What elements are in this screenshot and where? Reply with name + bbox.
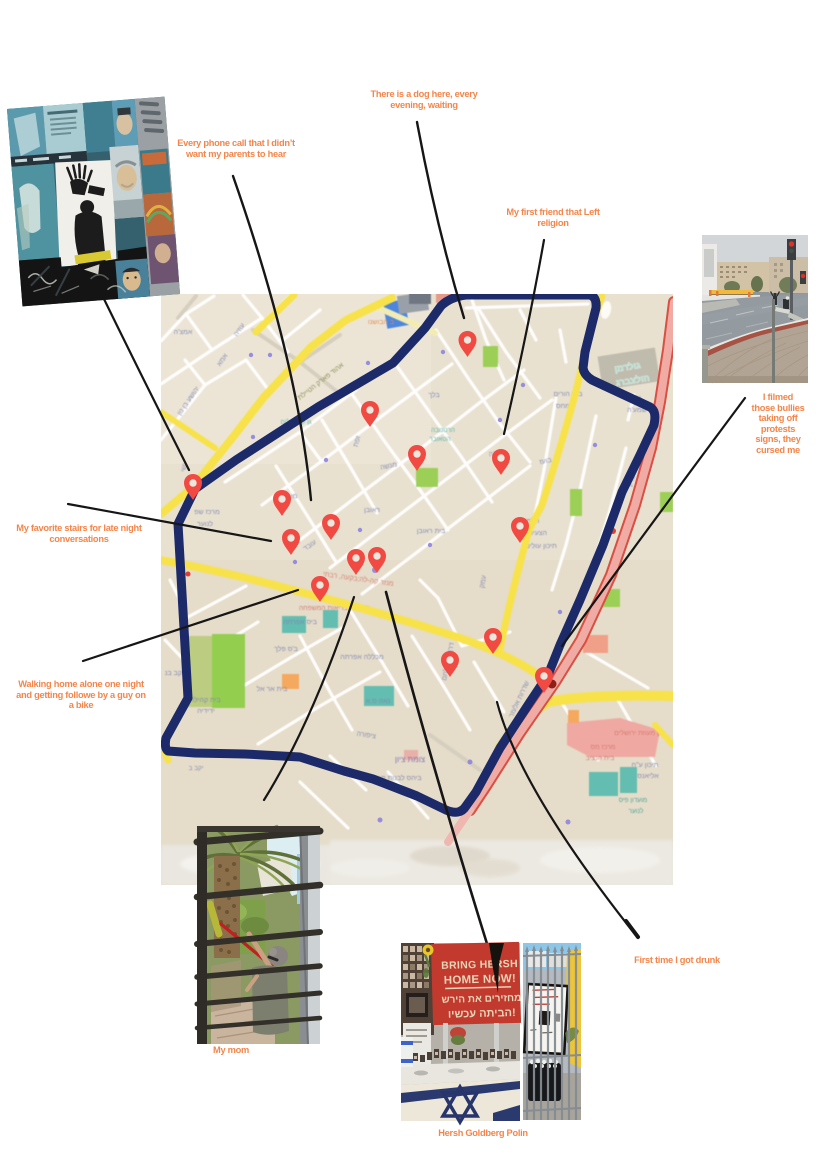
svg-text:הטאובר: הטאובר	[429, 436, 451, 443]
svg-text:מחזירים את הירש: מחזירים את הירש	[441, 993, 521, 1006]
svg-text:BRING HERSH: BRING HERSH	[441, 958, 518, 972]
svg-text:ב'ס פלך: ב'ס פלך	[274, 645, 298, 653]
svg-text:הביתה עכשיו!: הביתה עכשיו!	[448, 1007, 516, 1021]
svg-text:לנוער: לנוער	[629, 807, 644, 815]
svg-text:אליאנס: אליאנס	[637, 772, 659, 780]
svg-text:בית אר אל: בית אר אל	[257, 685, 288, 693]
svg-text:HOME NOW!: HOME NOW!	[444, 973, 517, 987]
svg-text:יקב ב: יקב ב	[188, 765, 203, 772]
svg-text:ב הבושנו: ב הבושנו	[368, 319, 394, 326]
svg-text:נאה ס.א: נאה ס.א	[366, 698, 391, 705]
svg-text:בלך: בלך	[428, 391, 439, 399]
svg-text:מכללה אפרתה: מכללה אפרתה	[340, 653, 384, 661]
svg-text:ביס אפרתה: ביס אפרתה	[283, 619, 317, 626]
svg-text:מרכז מס: מרכז מס	[591, 744, 616, 751]
svg-text:ראובן: ראובן	[364, 507, 380, 514]
svg-text:אמצ'ה: אמצ'ה	[174, 329, 193, 336]
svg-text:הרטנובה: הרטנובה	[431, 427, 455, 434]
svg-text:תיכון ע"ח: תיכון ע"ח	[632, 762, 659, 769]
svg-text:גן מעוזת ירושלים: גן מעוזת ירושלים	[614, 729, 662, 737]
svg-text:בית ראובן: בית ראובן	[417, 528, 446, 535]
svg-text:צומת ציון: צומת ציון	[395, 755, 426, 764]
svg-text:בית קהילת: בית קהילת	[189, 696, 220, 704]
svg-text:בית הנציב: בית הנציב	[586, 755, 615, 762]
svg-text:ידידיה: ידידיה	[197, 708, 215, 715]
svg-text:לנוער: לנוער	[197, 520, 213, 528]
svg-text:תיכון עולים: תיכון עולים	[525, 542, 557, 550]
svg-text:מועדון פיס: מועדון פיס	[619, 797, 648, 804]
svg-text:מרכז שפ: מרכז שפ	[194, 509, 220, 516]
